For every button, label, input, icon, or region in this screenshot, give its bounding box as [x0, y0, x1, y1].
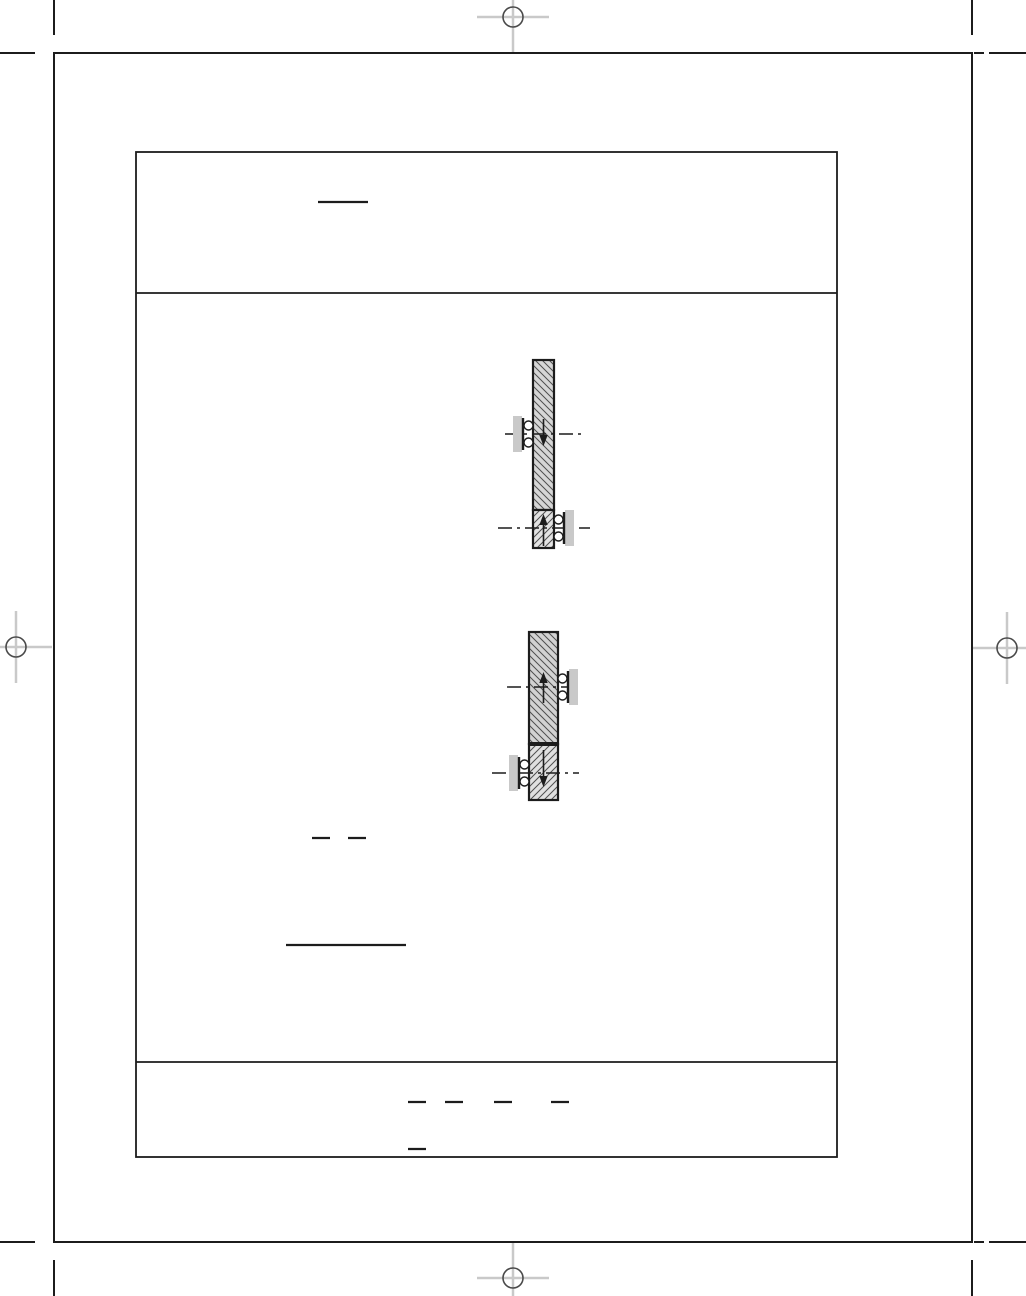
bearing-plate [569, 669, 578, 705]
roller-circle [520, 760, 529, 769]
inner-border [136, 152, 837, 1157]
scanned-document-page [0, 0, 1026, 1296]
bearing-plate [565, 510, 574, 546]
registration-mark [971, 612, 1026, 684]
outer-border [54, 53, 972, 1242]
roller-circle [558, 691, 567, 700]
roller-circle [520, 777, 529, 786]
support-diagram-upper [498, 360, 590, 548]
roller-circle [558, 674, 567, 683]
page-canvas [0, 0, 1026, 1296]
support-diagram-lower [492, 632, 579, 800]
bearing-plate [509, 755, 518, 791]
registration-mark [477, 0, 549, 53]
crop-marks [0, 0, 1026, 1296]
blank-rule-lines [286, 202, 569, 1149]
registration-mark [0, 611, 52, 683]
roller-circle [524, 421, 533, 430]
bearing-plate [513, 416, 522, 452]
registration-mark [477, 1242, 549, 1296]
roller-circle [554, 532, 563, 541]
registration-marks [0, 0, 1026, 1296]
roller-bearing-left [513, 416, 533, 452]
roller-circle [524, 438, 533, 447]
content-box [136, 152, 837, 1157]
roller-circle [554, 515, 563, 524]
